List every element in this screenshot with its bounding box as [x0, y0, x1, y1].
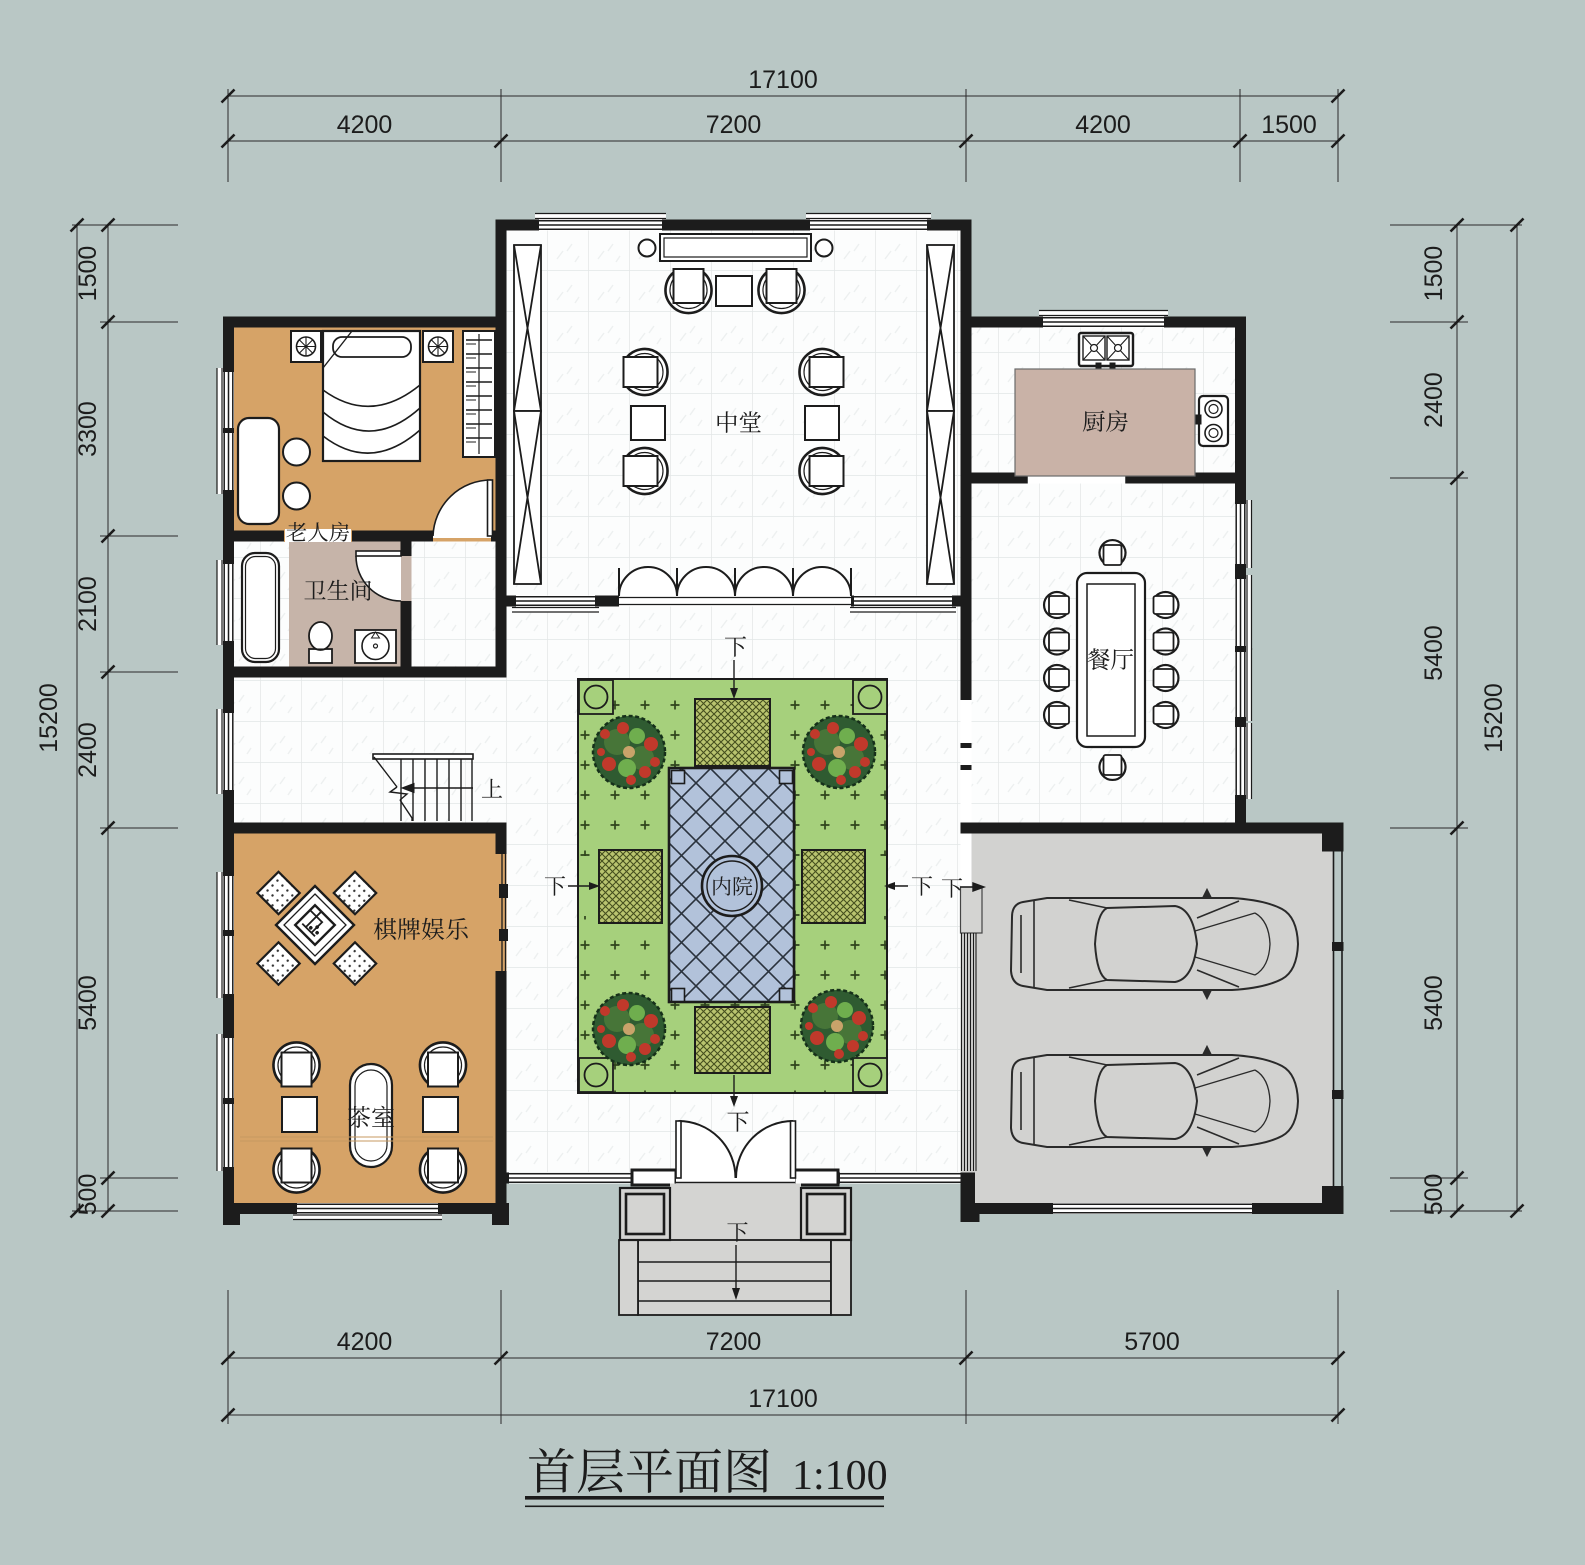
svg-text:2400: 2400 [1420, 372, 1448, 428]
svg-text:5400: 5400 [74, 975, 102, 1031]
svg-text:17100: 17100 [748, 1385, 818, 1413]
svg-text:500: 500 [74, 1174, 102, 1216]
svg-text:1500: 1500 [1420, 246, 1448, 302]
svg-text:15200: 15200 [35, 683, 63, 753]
svg-text:7200: 7200 [706, 111, 762, 139]
svg-text:500: 500 [1420, 1174, 1448, 1216]
svg-text:1500: 1500 [74, 246, 102, 302]
svg-text:1:100: 1:100 [792, 1453, 888, 1499]
svg-text:17100: 17100 [748, 66, 818, 94]
svg-text:1500: 1500 [1261, 111, 1317, 139]
svg-text:3300: 3300 [74, 401, 102, 457]
svg-text:5400: 5400 [1420, 625, 1448, 681]
svg-text:4200: 4200 [1075, 111, 1131, 139]
svg-text:5700: 5700 [1124, 1328, 1180, 1356]
svg-text:2100: 2100 [74, 576, 102, 632]
svg-text:4200: 4200 [337, 111, 393, 139]
svg-text:7200: 7200 [706, 1328, 762, 1356]
svg-text:4200: 4200 [337, 1328, 393, 1356]
svg-text:5400: 5400 [1420, 975, 1448, 1031]
svg-text:2400: 2400 [74, 722, 102, 778]
svg-text:15200: 15200 [1480, 683, 1508, 753]
